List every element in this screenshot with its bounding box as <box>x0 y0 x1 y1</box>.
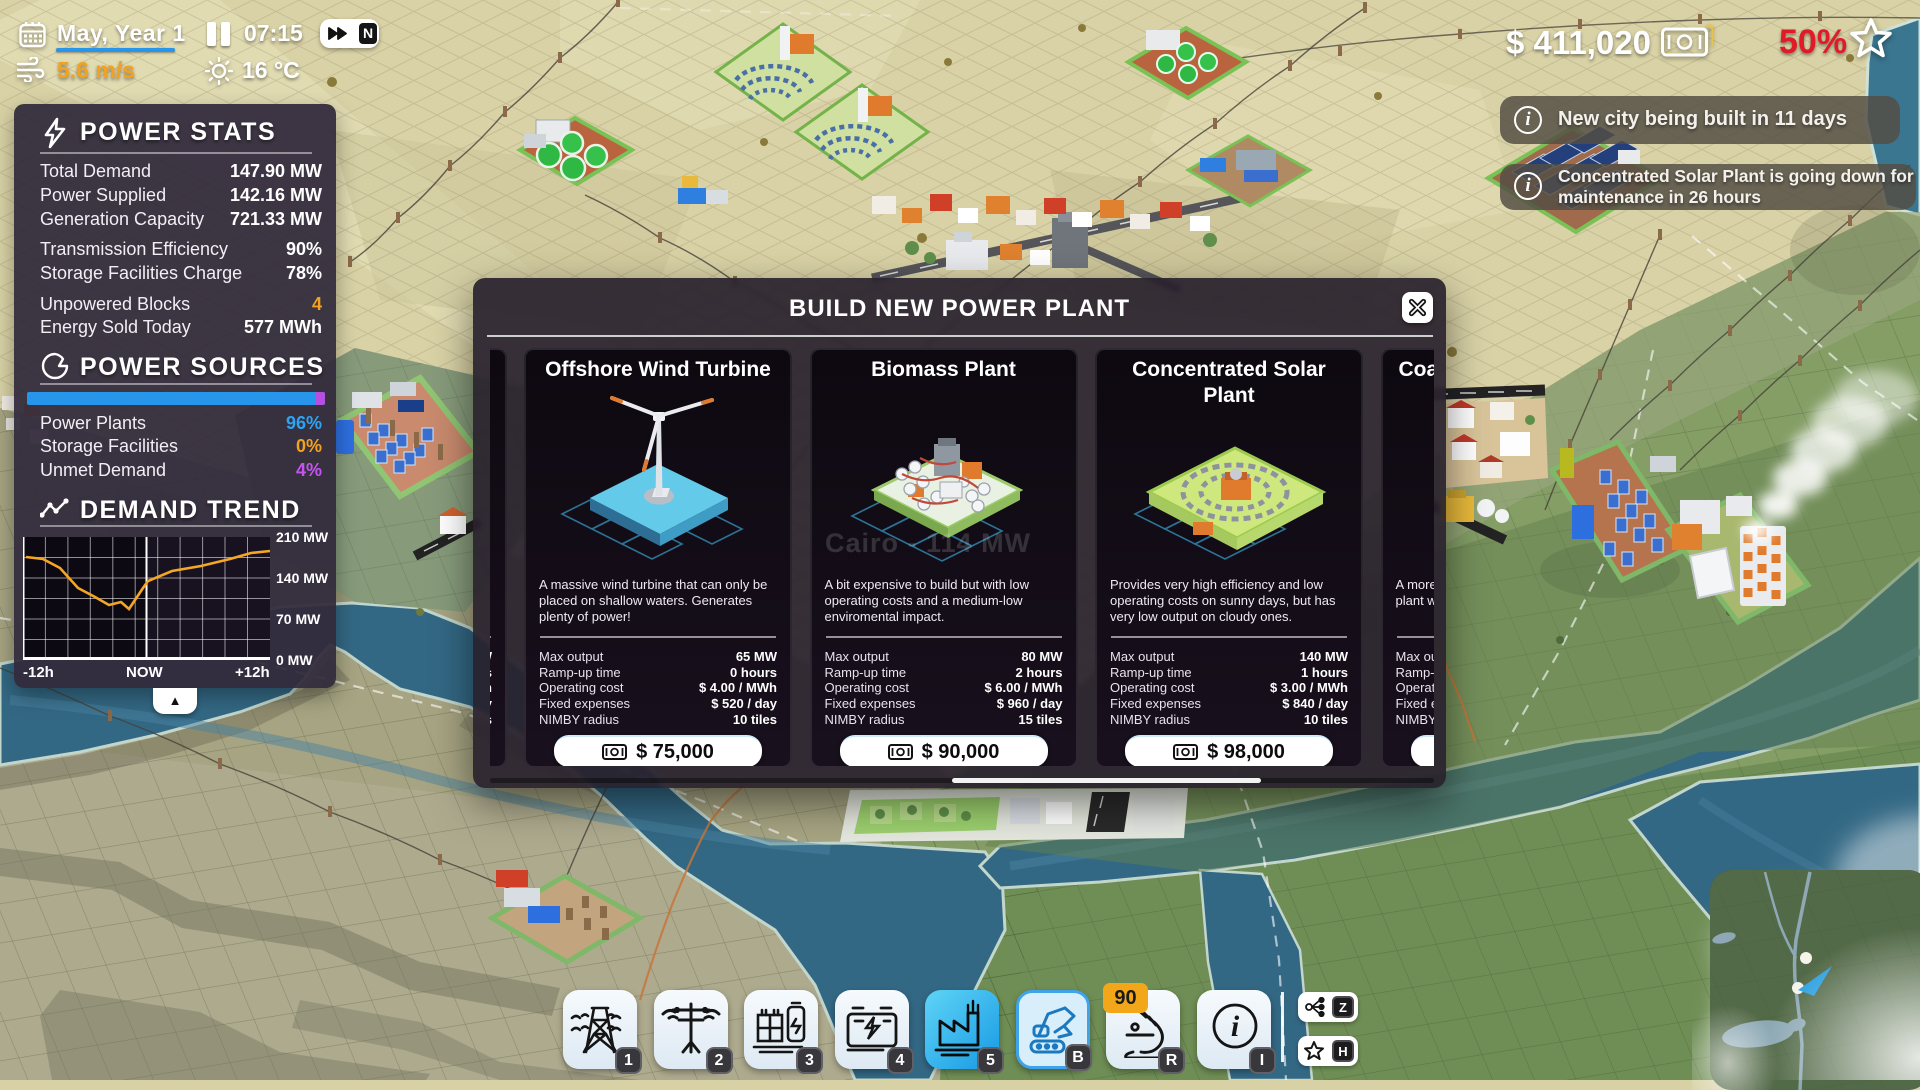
svg-text:i: i <box>1230 1010 1239 1043</box>
